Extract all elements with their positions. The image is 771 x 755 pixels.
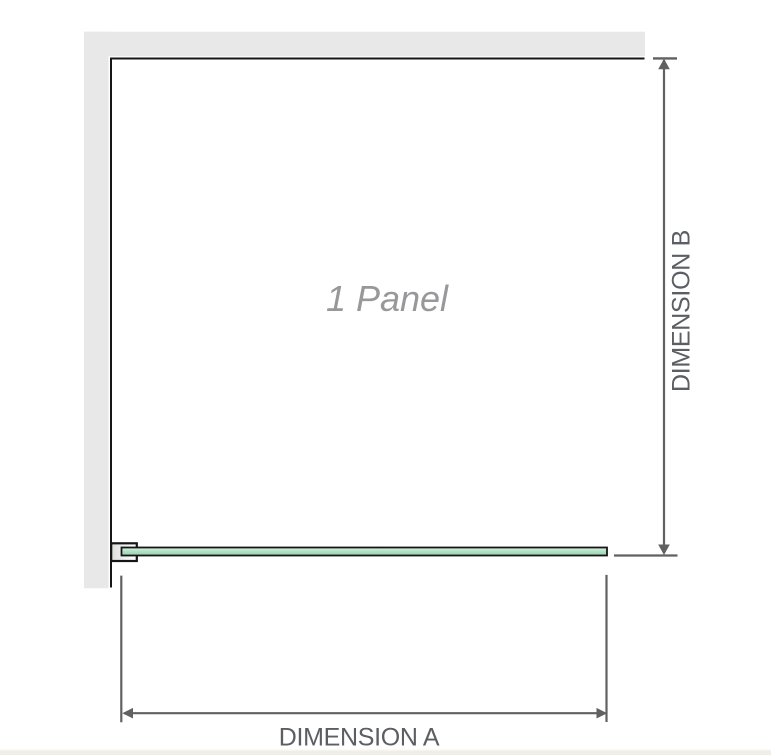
- svg-text:DIMENSION A: DIMENSION A: [279, 724, 440, 752]
- svg-text:1 Panel: 1 Panel: [326, 278, 449, 319]
- svg-text:DIMENSION B: DIMENSION B: [668, 230, 696, 392]
